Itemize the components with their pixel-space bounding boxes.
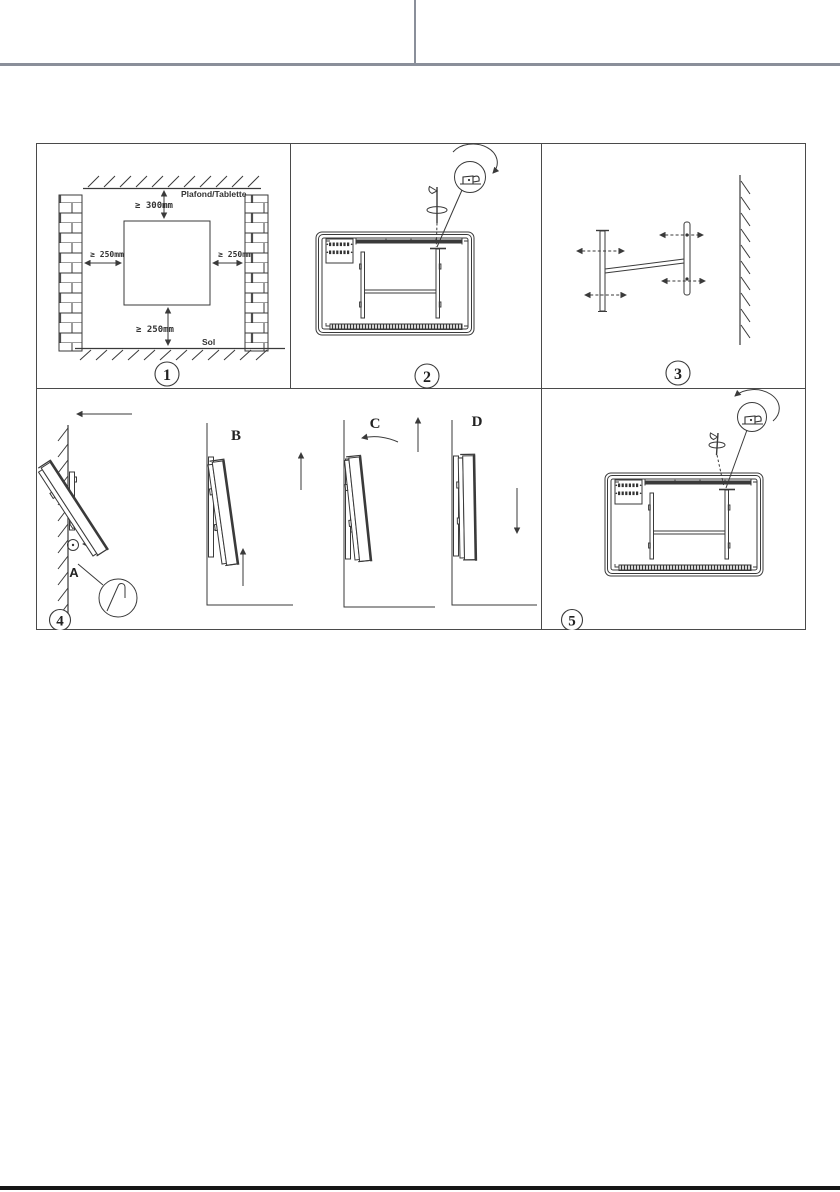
header-vertical-divider (414, 0, 416, 63)
right-wall-brick (245, 195, 268, 351)
substep-b: B (206, 423, 301, 605)
heater-outline (124, 221, 210, 305)
panel-2-back-screw-diagram: 2 (316, 144, 497, 388)
substep-d-label: D (472, 414, 483, 430)
svg-text:3: 3 (674, 366, 682, 383)
hook-detail-circle (78, 564, 137, 617)
svg-text:5: 5 (568, 614, 576, 630)
step-3-badge: 3 (666, 361, 690, 385)
svg-text:4: 4 (56, 614, 64, 630)
page-bottom-scan-bar (0, 1186, 840, 1190)
push-curve-arrow (362, 437, 398, 442)
panel-5-lock-screw-diagram: 5 (562, 390, 780, 630)
step-2-badge: 2 (415, 364, 439, 388)
clearance-bottom-label: ≥ 250mm (136, 325, 175, 335)
wall-hatch (740, 175, 750, 345)
substep-c-label: C (370, 416, 381, 432)
substep-d: D (452, 414, 537, 605)
installation-diagram-svg: Plafond/Tablette Sol ≥ 300mm ≥ 250mm ≥ 2… (36, 143, 806, 630)
rotation-arrow-icon (453, 144, 497, 173)
heater-side-vertical (456, 454, 477, 561)
svg-text:2: 2 (423, 369, 431, 386)
heater-side-near-vertical (342, 455, 372, 563)
step-1-badge: 1 (155, 362, 179, 386)
heater-back-view (316, 232, 474, 335)
substep-b-label: B (231, 428, 241, 444)
heater-back-view (605, 473, 763, 576)
panel-1-clearance-diagram: Plafond/Tablette Sol ≥ 300mm ≥ 250mm ≥ 2… (59, 176, 285, 386)
left-wall-brick (59, 195, 82, 351)
substep-c: C (342, 416, 435, 607)
step-4-badge: 4 (50, 610, 71, 631)
manual-page: Plafond/Tablette Sol ≥ 300mm ≥ 250mm ≥ 2… (0, 0, 840, 1192)
substep-a-label: A (69, 565, 79, 580)
clearance-top-label: ≥ 300mm (135, 201, 174, 211)
floor-label: Sol (202, 337, 215, 347)
panel-4-hanging-sequence: A B C (36, 414, 537, 630)
ceiling-label: Plafond/Tablette (181, 189, 247, 199)
screw-direction-arrows (577, 235, 705, 295)
clearance-left-label: ≥ 250mm (90, 250, 124, 259)
svg-text:1: 1 (163, 367, 171, 384)
installation-figure: Plafond/Tablette Sol ≥ 300mm ≥ 250mm ≥ 2… (36, 143, 806, 630)
step-5-badge: 5 (562, 610, 583, 631)
heater-side-near-vertical (206, 459, 240, 567)
panel-3-bracket-to-wall-diagram: 3 (577, 175, 750, 385)
clearance-right-label: ≥ 250mm (218, 250, 252, 259)
substep-a: A (36, 414, 137, 618)
ceiling-hatch (83, 176, 261, 189)
header-horizontal-rule (0, 63, 840, 66)
